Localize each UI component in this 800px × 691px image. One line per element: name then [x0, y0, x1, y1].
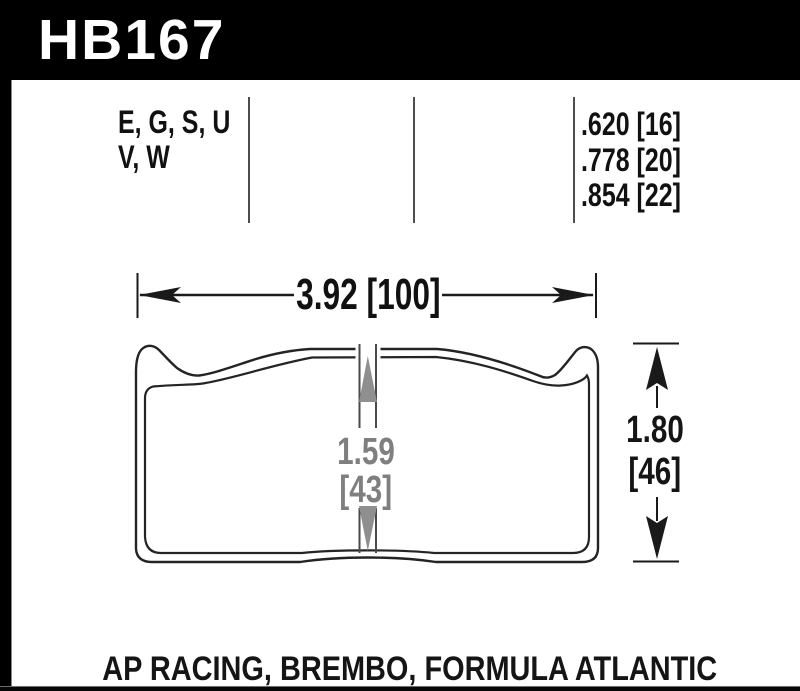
overall-height-value-inches: 1.80	[575, 411, 735, 449]
width-dimension-label: 3.92 [100]	[248, 272, 488, 318]
width-dimension-value: 3.92 [100]	[296, 272, 440, 318]
spec-sheet-card: HB167 E, G, S, U V, W .620 [16] .778 [20…	[0, 0, 800, 691]
inner-height-value-inches: 1.59	[286, 433, 446, 471]
height-arrowhead-down	[646, 516, 668, 559]
overall-height-value-mm: [46]	[575, 453, 735, 491]
inner-dim-arrowhead-up	[359, 356, 377, 402]
overall-height-mm-text: [46]	[629, 453, 682, 491]
overall-height-inches-text: 1.80	[626, 411, 684, 449]
inner-dim-arrowhead-down	[359, 506, 377, 551]
applications-text: AP RACING, BREMBO, FORMULA ATLANTIC	[103, 650, 718, 689]
inner-height-mm-text: [43]	[340, 471, 393, 509]
inner-height-inches-text: 1.59	[337, 433, 395, 471]
applications-label: AP RACING, BREMBO, FORMULA ATLANTIC	[20, 650, 800, 689]
height-arrowhead-up	[646, 347, 668, 390]
inner-height-value-mm: [43]	[286, 471, 446, 509]
technical-drawing-layer	[0, 0, 800, 691]
